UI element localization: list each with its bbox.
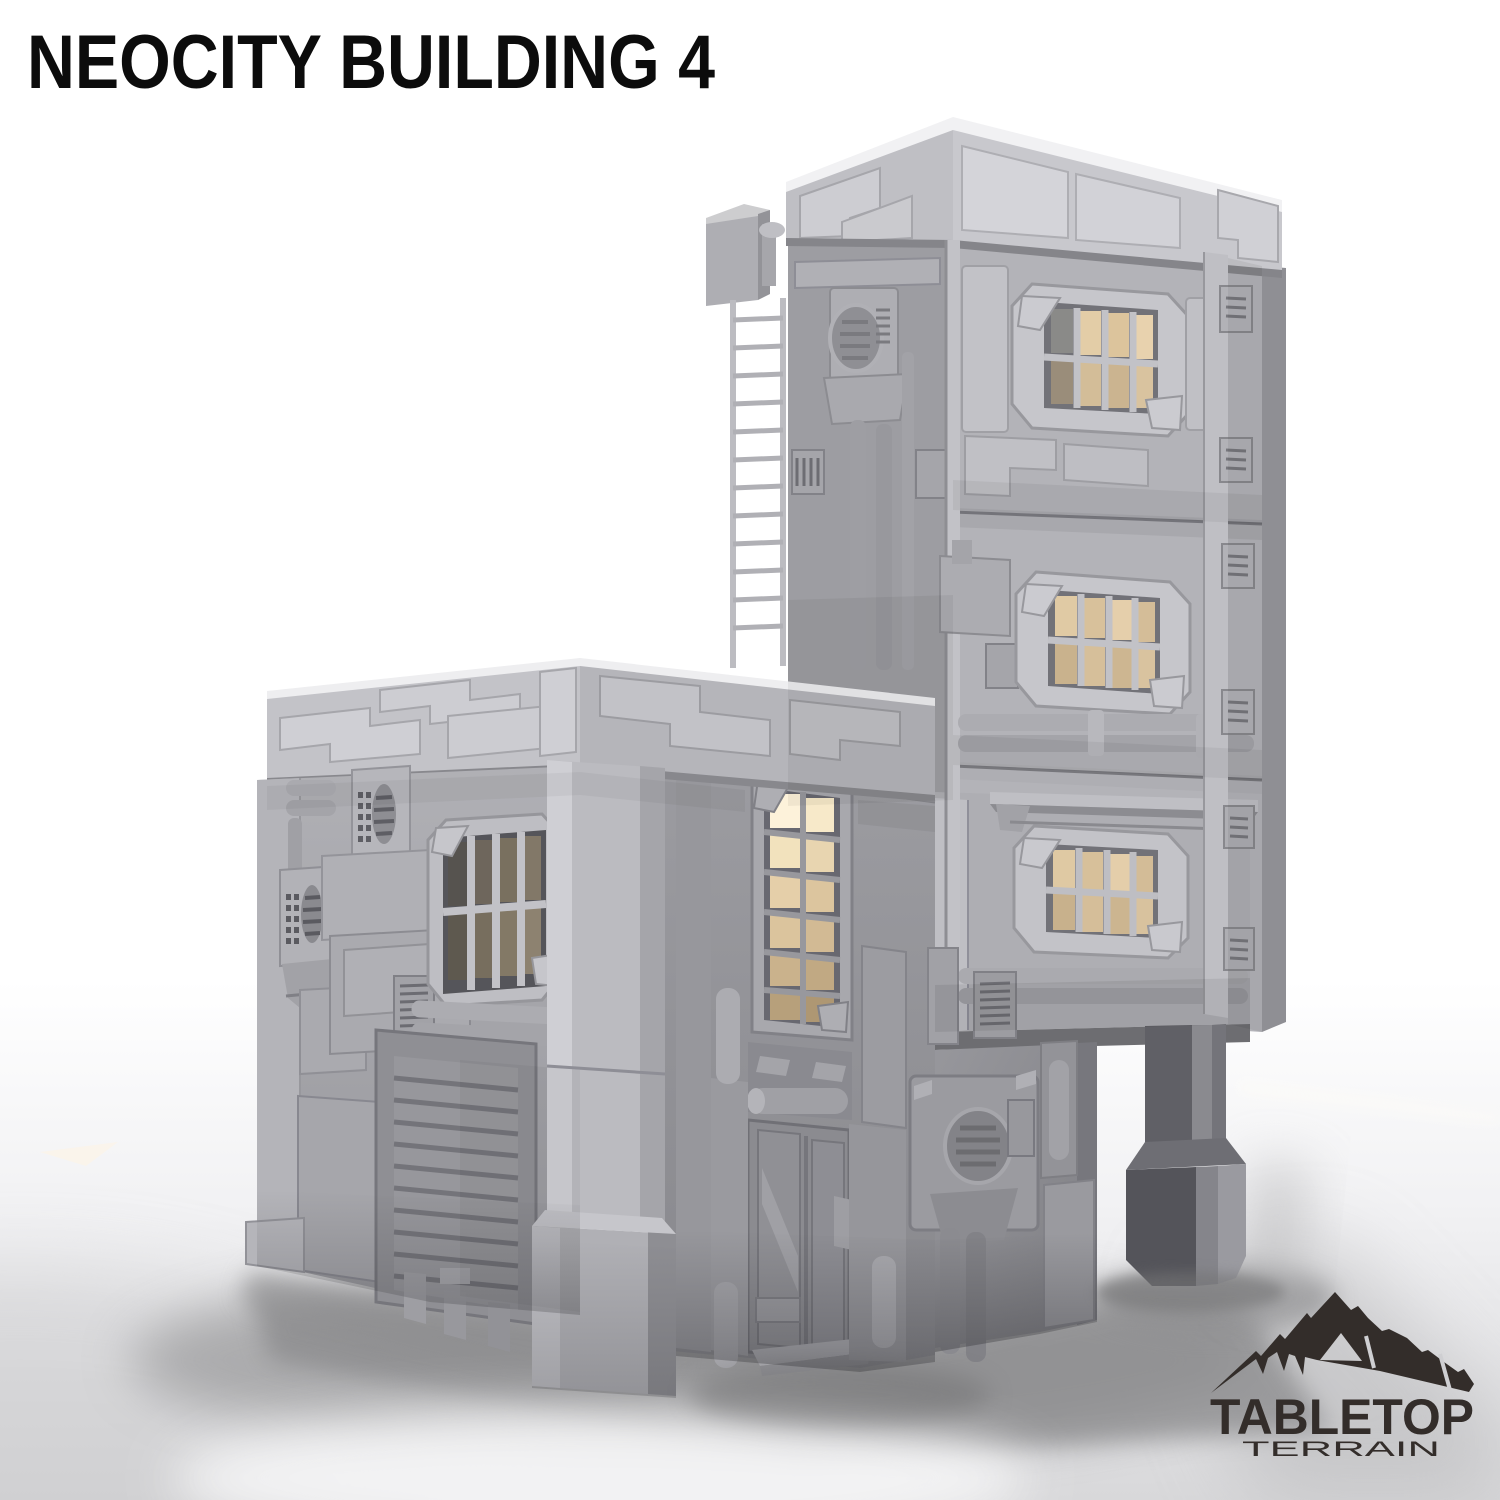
svg-text:NEOCITY BUILDING 4: NEOCITY BUILDING 4 <box>27 20 715 105</box>
svg-text:TABLETOP: TABLETOP <box>1210 1389 1474 1445</box>
svg-text:TERRAIN: TERRAIN <box>1242 1438 1440 1461</box>
